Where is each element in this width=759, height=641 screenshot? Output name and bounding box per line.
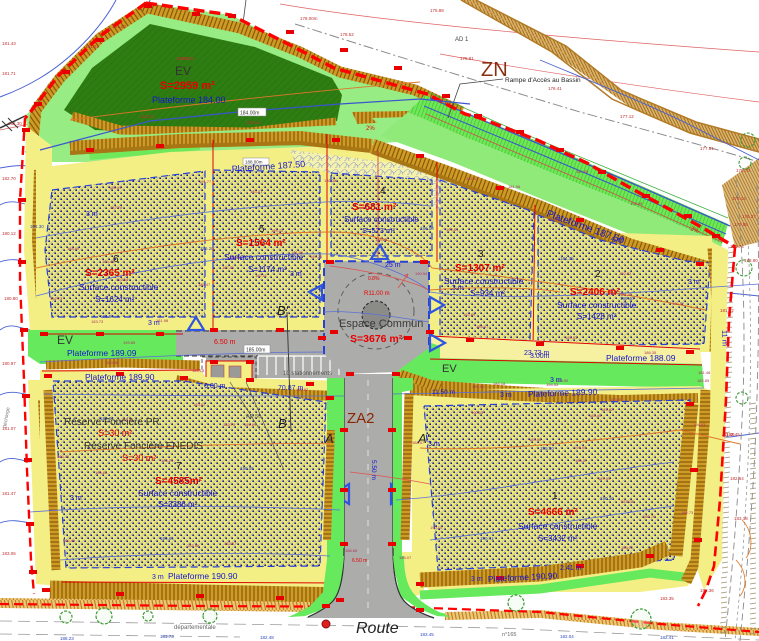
svg-text:182.49: 182.49 (63, 538, 76, 543)
svg-text:AD 1: AD 1 (455, 37, 469, 43)
svg-text:3 m: 3 m (428, 441, 440, 448)
svg-text:181.82: 181.82 (601, 407, 614, 412)
svg-text:S=3432 m²: S=3432 m² (538, 534, 578, 543)
svg-text:S=3386 m²: S=3386 m² (158, 500, 198, 509)
svg-text:181.71: 181.71 (2, 71, 16, 76)
svg-text:186.57: 186.57 (672, 301, 685, 306)
svg-text:183.57: 183.57 (224, 541, 237, 546)
svg-text:184.75: 184.75 (560, 256, 574, 261)
svg-text:6.50 m: 6.50 m (352, 558, 367, 564)
svg-text:190.10: 190.10 (430, 525, 443, 530)
svg-text:A: A (324, 431, 334, 446)
svg-text:190.03: 190.03 (471, 410, 484, 415)
svg-text:11.50 m: 11.50 m (432, 389, 455, 396)
svg-text:183.45: 183.45 (589, 413, 602, 418)
svg-text:3 m: 3 m (290, 271, 302, 278)
svg-text:n°165: n°165 (502, 632, 516, 638)
svg-text:25 m: 25 m (385, 262, 401, 269)
svg-text:1: 1 (552, 491, 558, 502)
svg-text:176.41: 176.41 (548, 86, 562, 91)
svg-text:178.70: 178.70 (736, 168, 750, 173)
svg-text:193.09: 193.09 (630, 201, 643, 206)
svg-text:189.75: 189.75 (271, 228, 284, 233)
svg-text:182.70: 182.70 (2, 176, 16, 181)
svg-text:3 m: 3 m (471, 576, 483, 583)
svg-text:185.20: 185.20 (200, 246, 214, 251)
svg-text:Surface constructible: Surface constructible (224, 252, 304, 262)
svg-text:182.48: 182.48 (260, 635, 274, 640)
svg-text:183.75: 183.75 (223, 422, 236, 427)
svg-text:183.18: 183.18 (734, 516, 748, 521)
svg-text:183.45: 183.45 (420, 632, 434, 637)
svg-text:Espace Commun: Espace Commun (339, 318, 423, 330)
svg-text:2.41 m: 2.41 m (560, 565, 582, 572)
svg-text:Surface constructible: Surface constructible (518, 521, 598, 531)
svg-text:3 m: 3 m (152, 574, 164, 581)
svg-text:194.93: 194.93 (574, 445, 587, 450)
svg-text:186.04: 186.04 (109, 185, 122, 190)
svg-text:2%: 2% (366, 126, 375, 132)
svg-text:185.00m: 185.00m (246, 348, 265, 354)
svg-text:186.65: 186.65 (345, 548, 358, 553)
svg-text:186.73: 186.73 (681, 510, 694, 515)
svg-text:S=1624 m²: S=1624 m² (95, 295, 135, 304)
svg-text:Surface constructible: Surface constructible (344, 215, 419, 224)
svg-text:179.74: 179.74 (730, 244, 744, 249)
svg-text:188.09: 188.09 (67, 246, 80, 251)
svg-text:23.73 m: 23.73 m (524, 350, 549, 357)
svg-text:180.88: 180.88 (106, 360, 119, 365)
svg-text:181.48: 181.48 (698, 370, 711, 375)
svg-text:181.43: 181.43 (2, 41, 16, 46)
svg-text:183.98: 183.98 (529, 437, 542, 442)
svg-text:2: 2 (595, 269, 601, 280)
svg-text:177.61: 177.61 (700, 146, 714, 151)
svg-text:S=1428 m²: S=1428 m² (577, 312, 617, 321)
svg-text:S=2406 m²: S=2406 m² (570, 287, 620, 298)
svg-text:187.28: 187.28 (621, 499, 634, 504)
svg-text:Route: Route (356, 620, 399, 637)
svg-text:182.45: 182.45 (726, 432, 740, 437)
svg-text:186.35: 186.35 (324, 178, 337, 183)
svg-text:Plateforme 189.09: Plateforme 189.09 (67, 348, 137, 358)
svg-text:189.47: 189.47 (198, 282, 211, 287)
svg-text:182.04: 182.04 (560, 634, 574, 639)
svg-text:187.09: 187.09 (598, 476, 611, 481)
svg-text:175.81: 175.81 (460, 56, 474, 61)
svg-text:186.00: 186.00 (420, 226, 434, 231)
svg-text:192.89: 192.89 (463, 312, 476, 317)
svg-text:5 m: 5 m (612, 237, 624, 244)
svg-text:187.13: 187.13 (466, 176, 479, 181)
svg-text:183.35: 183.35 (660, 596, 674, 601)
svg-text:186.47: 186.47 (476, 324, 489, 329)
svg-text:182.30: 182.30 (8, 121, 22, 126)
svg-text:S=30 m²: S=30 m² (98, 428, 132, 438)
svg-text:0.8%: 0.8% (368, 276, 380, 282)
svg-text:190.95: 190.95 (472, 384, 485, 389)
svg-text:183.37: 183.37 (575, 458, 588, 463)
svg-text:177.88: 177.88 (734, 222, 748, 227)
svg-text:181.40: 181.40 (112, 24, 126, 29)
svg-text:EV: EV (175, 64, 191, 78)
svg-text:184.18: 184.18 (493, 381, 506, 386)
svg-text:S=2365 m²: S=2365 m² (85, 268, 135, 279)
svg-text:194.03: 194.03 (693, 422, 706, 427)
svg-text:182.86: 182.86 (187, 543, 200, 548)
svg-text:178.52: 178.52 (340, 32, 354, 37)
svg-text:183.73: 183.73 (160, 634, 174, 639)
svg-text:Plateforme 190.90: Plateforme 190.90 (168, 571, 238, 581)
svg-text:190.41: 190.41 (480, 536, 494, 541)
svg-text:3: 3 (478, 249, 484, 260)
svg-text:182.85: 182.85 (697, 378, 710, 383)
svg-text:3 m: 3 m (688, 279, 700, 286)
svg-text:EV: EV (57, 333, 73, 347)
svg-text:R11.00 m: R11.00 m (364, 291, 390, 297)
svg-text:EV: EV (442, 363, 457, 375)
svg-text:194.76: 194.76 (310, 254, 323, 259)
svg-text:3 m: 3 m (148, 320, 160, 327)
svg-text:193.85: 193.85 (123, 340, 136, 345)
svg-text:Surface constructible: Surface constructible (79, 282, 159, 292)
svg-text:4: 4 (380, 186, 386, 197)
svg-text:183.06: 183.06 (2, 551, 16, 556)
svg-text:183.64: 183.64 (246, 120, 260, 125)
svg-text:ZA2: ZA2 (347, 410, 375, 427)
svg-text:S=2959 m²: S=2959 m² (160, 80, 215, 92)
svg-text:70.87 m: 70.87 m (278, 385, 303, 392)
svg-text:183.36: 183.36 (700, 588, 714, 593)
svg-text:180.76: 180.76 (643, 514, 656, 519)
svg-text:6.50 m: 6.50 m (214, 339, 236, 346)
svg-text:177.12: 177.12 (620, 114, 634, 119)
svg-text:186.50: 186.50 (100, 314, 114, 319)
svg-text:184.30: 184.30 (30, 224, 44, 229)
svg-text:189.30: 189.30 (540, 446, 554, 451)
svg-text:ZN: ZN (481, 59, 508, 81)
svg-text:3 m: 3 m (86, 211, 98, 218)
svg-text:187.01: 187.01 (222, 265, 235, 270)
svg-text:Surface constructible: Surface constructible (138, 488, 218, 498)
svg-text:186.02: 186.02 (621, 545, 634, 550)
svg-text:181.06: 181.06 (508, 184, 521, 189)
svg-text:3 m: 3 m (500, 392, 512, 399)
svg-text:3 m: 3 m (452, 285, 464, 292)
svg-text:190.20: 190.20 (600, 496, 614, 501)
svg-text:184.68: 184.68 (576, 169, 589, 174)
svg-text:180.12: 180.12 (2, 231, 16, 236)
svg-text:3 m: 3 m (550, 377, 562, 384)
svg-text:185.68: 185.68 (95, 470, 108, 475)
svg-text:188.23: 188.23 (60, 636, 74, 641)
svg-text:178.14: 178.14 (732, 196, 746, 201)
svg-text:AD 50: AD 50 (246, 414, 261, 420)
svg-text:181.22: 181.22 (720, 308, 734, 313)
svg-text:178.90: 178.90 (744, 258, 758, 263)
svg-text:S=681 m²: S=681 m² (352, 202, 397, 213)
svg-text:183.18: 183.18 (192, 368, 205, 373)
svg-text:187.76: 187.76 (110, 205, 123, 210)
svg-text:183.01: 183.01 (140, 114, 154, 119)
svg-text:Réserve Foncière PR: Réserve Foncière PR (64, 417, 160, 428)
svg-text:Rampe d'Accès au Bassin: Rampe d'Accès au Bassin (505, 77, 581, 84)
svg-text:192.73: 192.73 (50, 296, 63, 301)
svg-text:192.54: 192.54 (446, 227, 459, 232)
svg-text:11 m: 11 m (720, 330, 730, 346)
svg-text:3 m: 3 m (70, 495, 82, 502)
svg-text:190.64: 190.64 (160, 536, 174, 541)
svg-text:5.50 m: 5.50 m (370, 460, 377, 480)
svg-text:S=4666 m²: S=4666 m² (528, 507, 578, 518)
svg-text:7: 7 (176, 461, 182, 472)
svg-text:183.02: 183.02 (193, 402, 206, 407)
svg-text:Plateforme 188.09: Plateforme 188.09 (606, 353, 676, 363)
svg-text:183.21: 183.21 (250, 189, 263, 194)
svg-text:192.92: 192.92 (619, 271, 632, 276)
svg-text:184.00m: 184.00m (240, 111, 259, 117)
svg-text:182.64: 182.64 (730, 476, 744, 481)
svg-text:6: 6 (113, 254, 119, 265)
svg-text:10 stationnements: 10 stationnements (283, 371, 332, 377)
svg-text:Plateforme 184.00: Plateforme 184.00 (152, 95, 226, 105)
svg-text:191.77: 191.77 (199, 179, 212, 184)
svg-text:194.99: 194.99 (244, 422, 257, 427)
svg-text:179.27: 179.27 (742, 214, 756, 219)
svg-text:180.80: 180.80 (4, 296, 18, 301)
svg-text:S=3676 m²: S=3676 m² (350, 333, 403, 345)
svg-text:S=1307 m²: S=1307 m² (455, 263, 505, 274)
svg-text:Plateforme 189.90: Plateforme 189.90 (85, 372, 155, 382)
svg-text:Réserve Foncière ENEDIS: Réserve Foncière ENEDIS (84, 441, 203, 452)
svg-text:183.73: 183.73 (91, 319, 104, 324)
svg-text:192.93: 192.93 (565, 335, 578, 340)
svg-text:188.25: 188.25 (375, 237, 388, 242)
svg-text:5: 5 (259, 224, 265, 235)
svg-text:190.94: 190.94 (415, 271, 428, 276)
svg-text:178.00m: 178.00m (300, 16, 318, 21)
svg-text:180.97: 180.97 (2, 361, 16, 366)
svg-text:6.00 m: 6.00 m (204, 383, 226, 390)
svg-text:183.21: 183.21 (161, 458, 174, 463)
svg-text:175.88: 175.88 (430, 8, 444, 13)
svg-text:B: B (278, 416, 287, 431)
svg-text:186.33: 186.33 (57, 454, 70, 459)
svg-text:182.41: 182.41 (660, 635, 674, 640)
svg-text:départementale: départementale (174, 625, 216, 631)
svg-text:183.30: 183.30 (610, 397, 623, 402)
svg-text:Surface constructible: Surface constructible (557, 300, 637, 310)
svg-text:S=934 m²: S=934 m² (470, 289, 505, 298)
svg-text:S=4585m²: S=4585m² (155, 476, 203, 487)
svg-text:190.05: 190.05 (240, 466, 254, 471)
svg-text:B': B' (277, 303, 289, 318)
svg-text:S=1174 m²: S=1174 m² (248, 265, 287, 274)
svg-text:181.47: 181.47 (2, 491, 16, 496)
svg-text:181.21: 181.21 (85, 44, 99, 49)
svg-text:S=30 m²: S=30 m² (122, 453, 156, 463)
svg-text:S=573 m²: S=573 m² (362, 226, 395, 235)
svg-text:183.15: 183.15 (176, 56, 190, 61)
svg-text:185.07: 185.07 (399, 555, 412, 560)
svg-text:S=1564 m²: S=1564 m² (236, 238, 286, 249)
